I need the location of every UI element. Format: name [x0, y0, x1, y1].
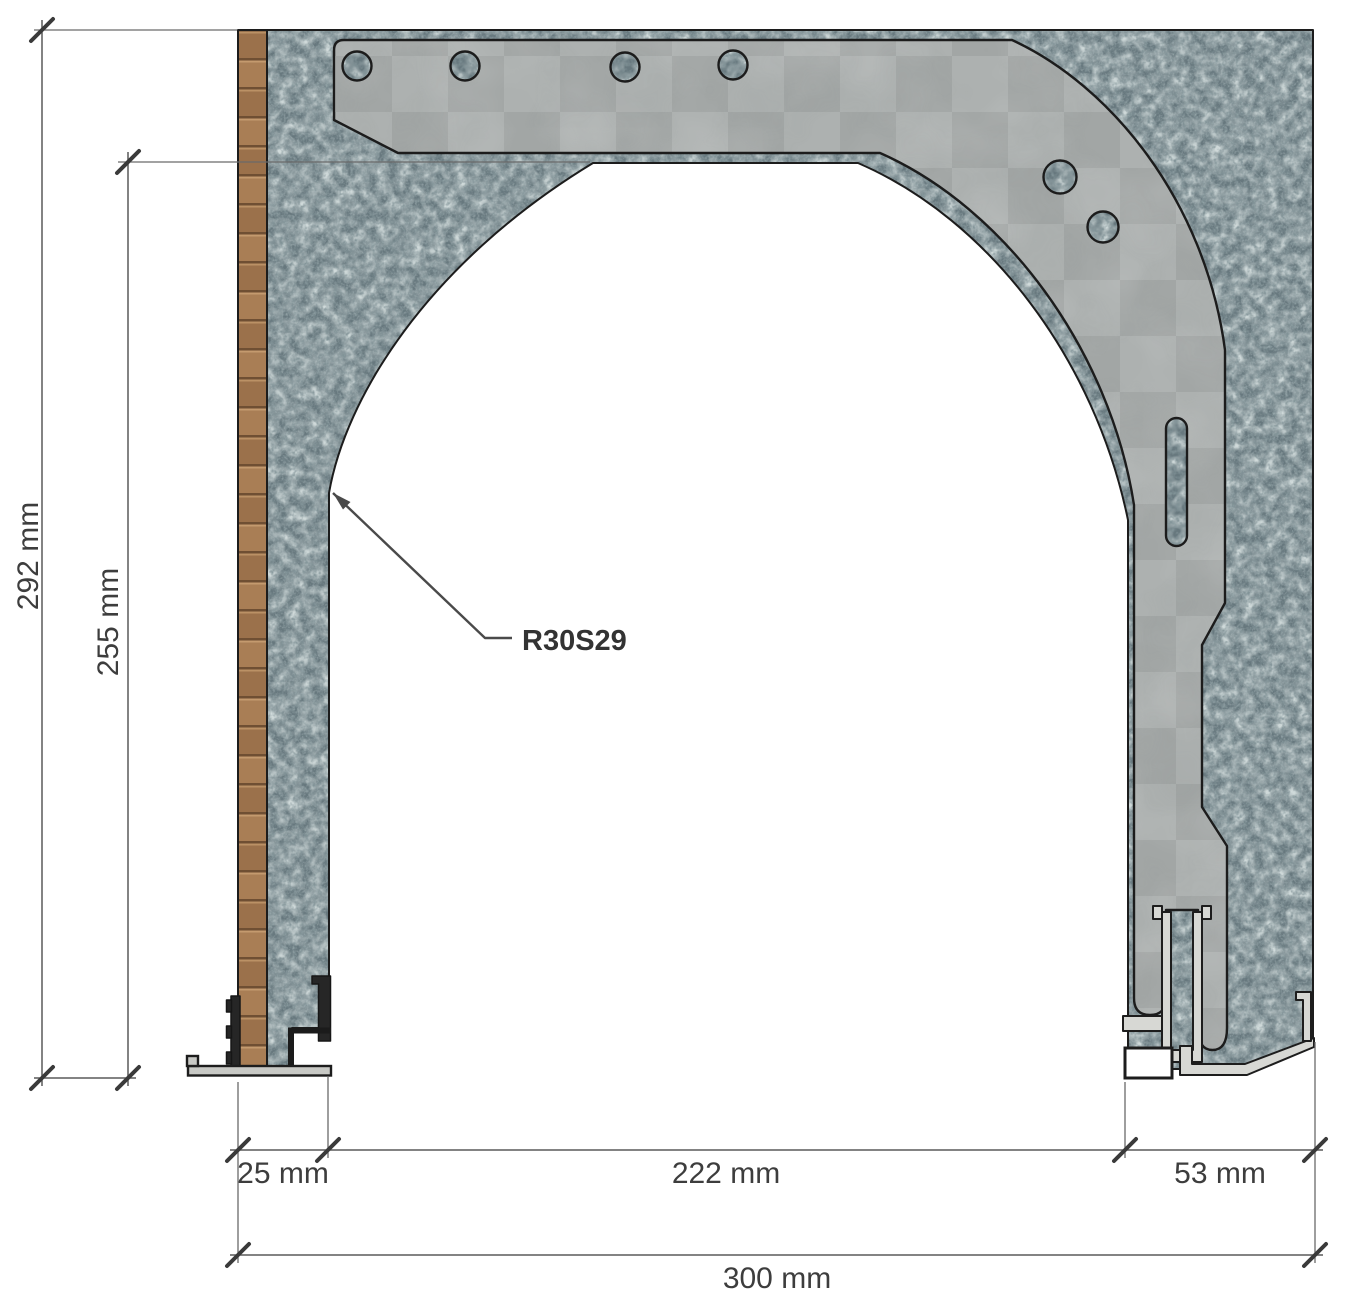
leader-line [333, 493, 512, 638]
dimension-label-overall-width: 300 mm [723, 1262, 831, 1295]
dimension-label-left-wall: 25 mm [237, 1157, 329, 1190]
dimension-label-opening-width: 222 mm [672, 1157, 780, 1190]
dimension-label-overall-height: 292 mm [12, 502, 45, 610]
dimension-label-opening-height: 255 mm [92, 568, 125, 676]
dimension-label-right-wall: 53 mm [1174, 1157, 1266, 1190]
part-code-label: R30S29 [522, 625, 627, 657]
channel-hook-left [1153, 906, 1162, 919]
dimension-overall-height: 292 mm [12, 19, 237, 1089]
hollow-box-profile [1125, 1048, 1172, 1078]
shutter-box-section-drawing: 292 mm 255 mm 25 mm 222 mm 53 mm [0, 0, 1345, 1295]
part-annotation: R30S29 [333, 493, 627, 657]
step-profile [1123, 1016, 1162, 1031]
wood-fill [238, 30, 267, 1068]
dimension-overall-width: 300 mm [227, 1244, 1326, 1295]
technical-drawing-page: 292 mm 255 mm 25 mm 222 mm 53 mm [0, 0, 1345, 1295]
channel-hook-right [1202, 906, 1211, 919]
plaster-bead-profile [227, 996, 241, 1068]
wood-lining-strip [238, 30, 267, 1068]
